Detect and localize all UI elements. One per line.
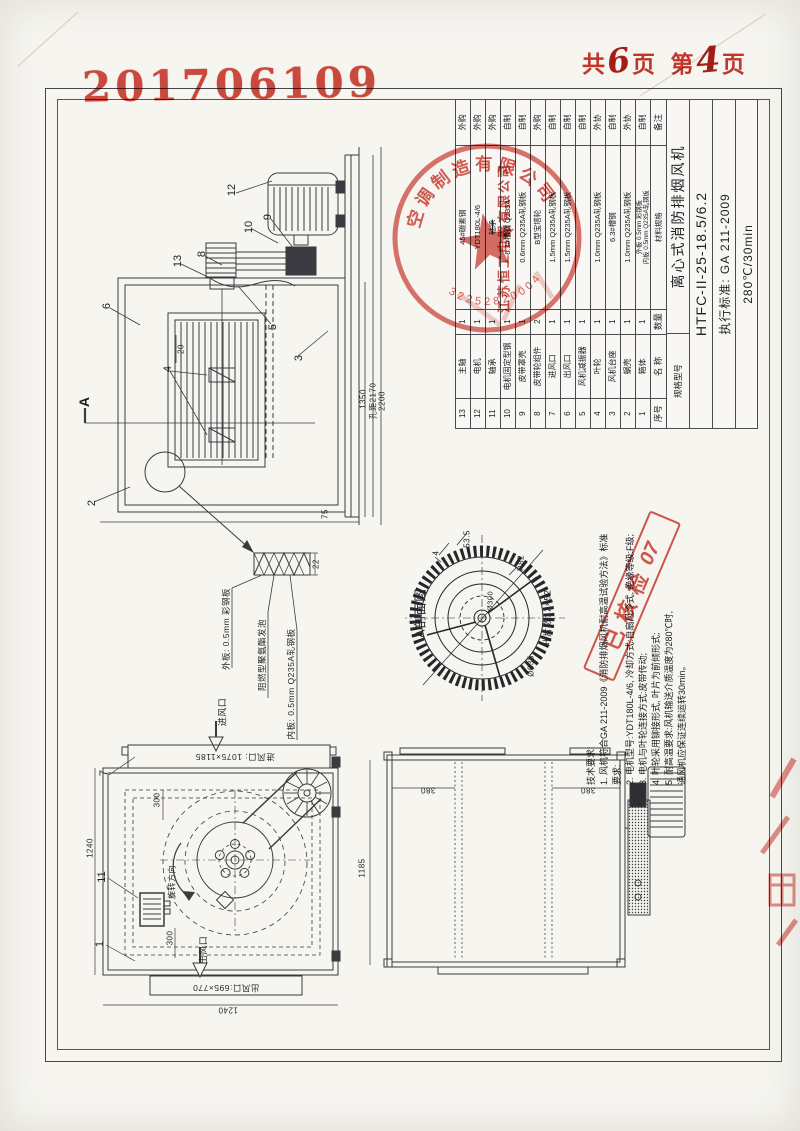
bom-cell-no: 5 xyxy=(576,398,590,428)
bom-cell-no: 6 xyxy=(561,398,575,428)
dim-d300: Ø300 xyxy=(486,591,495,611)
dim-4: 4 xyxy=(432,551,441,556)
bom-header-remark: 备注 xyxy=(651,100,666,145)
bom-cell-material: 6.3#槽钢 xyxy=(606,145,620,309)
detail-label-outer: 外板: 0.5mm 彩钢板 xyxy=(220,588,232,670)
temperature-rating: 280℃/30min xyxy=(736,100,759,428)
bom-row: 2蜗壳11.0mm Q235A轧钢板外协 xyxy=(621,100,636,428)
bom-cell-no: 10 xyxy=(501,398,515,428)
page-num-suffix: 页 xyxy=(722,51,745,78)
bom-cell-material: 外板 0.5mm 彩钢板内板 0.5mm Q235A轧钢板 xyxy=(636,145,650,309)
bom-cell-remark: 自制 xyxy=(636,100,650,145)
dim-75: 75 xyxy=(321,509,330,519)
balloon-1: 1 xyxy=(94,941,106,947)
bom-cell-no: 2 xyxy=(621,398,635,428)
balloon-12: 12 xyxy=(226,184,238,196)
page-total-value: 6 xyxy=(604,40,632,82)
bom-header-qty: 数量 xyxy=(651,309,666,334)
balloon-4: 4 xyxy=(162,366,174,372)
outlet-size-label: 出风口:695×770 xyxy=(193,982,260,994)
inlet-size-label: 进风口: 1075×1185 xyxy=(195,751,274,763)
dim-300-bottom: 300 xyxy=(166,931,175,946)
bom-cell-name: 箱体 xyxy=(636,334,650,399)
product-name: 离心式消防排烟风机 xyxy=(667,100,689,333)
edge-stamp-fragment xyxy=(742,755,800,955)
bom-row: 1箱体1外板 0.5mm 彩钢板内板 0.5mm Q235A轧钢板自制 xyxy=(636,100,651,428)
bom-cell-remark: 外购 xyxy=(456,100,470,145)
title-model-row: HTFC-II-25-18.5/6.2 xyxy=(690,100,713,428)
bom-cell-no: 13 xyxy=(456,398,470,428)
bom-cell-remark: 自制 xyxy=(576,100,590,145)
detail-label-core: 阻燃型聚氨酯发泡 xyxy=(256,619,268,691)
bom-header-no: 序号 xyxy=(651,398,666,428)
bom-cell-no: 8 xyxy=(531,398,545,428)
bom-cell-name: 进风口 xyxy=(546,334,560,399)
bom-cell-name: 皮带轮组件 xyxy=(531,334,545,399)
dim-2200: 2200 xyxy=(378,391,387,411)
dim-1240-left: 1240 xyxy=(86,838,95,858)
title-standard-row: 执行标准: GA 211-2009 xyxy=(713,100,736,428)
bom-cell-no: 1 xyxy=(636,398,650,428)
dim-1240-bottom: 1240 xyxy=(218,1006,238,1015)
spec-label: 规格型号 xyxy=(667,333,689,428)
section-marker-a: A xyxy=(76,397,92,407)
balloon-9: 9 xyxy=(262,214,274,220)
bom-row: 4叶轮11.0mm Q235A轧钢板外协 xyxy=(591,100,606,428)
bom-header-material: 材料规格 xyxy=(651,145,666,309)
bom-cell-remark: 自制 xyxy=(606,100,620,145)
balloon-5: 5 xyxy=(267,324,279,330)
bom-cell-name: 蜗壳 xyxy=(621,334,635,399)
tech-requirement-line: 通风机应保证连续运转30min。 xyxy=(676,522,689,785)
bom-cell-no: 11 xyxy=(486,398,500,428)
bom-cell-name: 叶轮 xyxy=(591,334,605,399)
svg-text:空调制造有限公司: 空调制造有限公司 xyxy=(394,141,563,233)
seal-ring-text: 空调制造有限公司 xyxy=(394,141,563,233)
bom-header-name: 名 称 xyxy=(651,334,666,399)
company-name-stamp: 江苏恒工电器有限公司 xyxy=(494,163,513,313)
dim-53-5: 53.5 xyxy=(463,530,472,548)
page-num-prefix: 第 xyxy=(671,51,694,78)
bom-cell-name: 主轴 xyxy=(456,334,470,399)
bom-cell-no: 12 xyxy=(471,398,485,428)
bom-cell-no: 9 xyxy=(516,398,530,428)
bom-header-row: 序号 名 称 数量 材料规格 备注 xyxy=(651,100,667,428)
dim-d635: Ø635 xyxy=(527,655,536,677)
balloon-11: 11 xyxy=(96,871,108,882)
bom-cell-remark: 外购 xyxy=(471,100,485,145)
page-total-prefix: 共 xyxy=(582,51,605,78)
page-num-value: 4 xyxy=(694,39,722,82)
bom-cell-name: 皮带罩壳 xyxy=(516,334,530,399)
section-a-title: A剖面图 xyxy=(410,588,429,638)
bom-cell-name: 风机减振器 xyxy=(576,334,590,399)
balloon-8: 8 xyxy=(196,251,208,257)
balloon-13: 13 xyxy=(172,255,184,267)
balloon-7: 7 xyxy=(98,770,110,776)
dim-r82: R82 xyxy=(517,555,526,571)
standard-note: 执行标准: GA 211-2009 xyxy=(713,100,735,428)
outlet-label: 出风口 xyxy=(197,936,210,965)
plan-view-drawing xyxy=(85,695,350,1030)
blade-count-note: 叶片数: 2×52 xyxy=(541,590,554,647)
bom-cell-name: 出风口 xyxy=(561,334,575,399)
bom-row: 3风机台座16.3#槽钢自制 xyxy=(606,100,621,428)
company-seal-stamp: 空调制造有限公司 32252820004 xyxy=(373,124,600,351)
bom-cell-no: 4 xyxy=(591,398,605,428)
bom-cell-no: 7 xyxy=(546,398,560,428)
bom-cell-name: 风机台座 xyxy=(606,334,620,399)
title-rating-row: 280℃/30min xyxy=(736,100,759,428)
bom-cell-name: 轴承 xyxy=(486,334,500,399)
balloon-6: 6 xyxy=(101,303,113,309)
detail-dim-22: 22 xyxy=(312,559,321,569)
bom-cell-qty: 1 xyxy=(606,309,620,334)
dim-1185: 1185 xyxy=(358,858,367,877)
dim-300-top: 300 xyxy=(153,793,162,808)
scanned-drawing-sheet: 201706109 共6页 第4页 xyxy=(0,0,800,1131)
product-model: HTFC-II-25-18.5/6.2 xyxy=(690,100,712,428)
page-total-suffix: 页 xyxy=(632,51,655,78)
bom-cell-material: 1.0mm Q235A轧钢板 xyxy=(621,145,635,309)
balloon-10: 10 xyxy=(243,221,255,233)
balloon-2: 2 xyxy=(86,500,98,506)
page-count: 共6页 第4页 xyxy=(582,40,767,81)
inlet-label: 进风口 xyxy=(216,698,229,727)
bom-cell-qty: 1 xyxy=(636,309,650,334)
bom-cell-name: 电机固定型钢 xyxy=(501,334,515,399)
bom-cell-name: 电机 xyxy=(471,334,485,399)
rotation-label: 旋转方向 xyxy=(167,865,178,899)
bom-cell-qty: 1 xyxy=(621,309,635,334)
doc-number-stamp: 201706109 xyxy=(82,57,382,111)
dim-380-left: 380 xyxy=(421,786,436,795)
balloon-3: 3 xyxy=(293,355,305,361)
bom-cell-no: 3 xyxy=(606,398,620,428)
title-name-row: 规格型号 离心式消防排烟风机 xyxy=(667,100,690,428)
dim-380-right: 380 xyxy=(581,786,596,795)
bom-cell-remark: 外协 xyxy=(621,100,635,145)
dim-1350: 1350 xyxy=(359,389,368,409)
bom-cell-remark: 外协 xyxy=(591,100,605,145)
dim-20: 20 xyxy=(177,344,186,354)
